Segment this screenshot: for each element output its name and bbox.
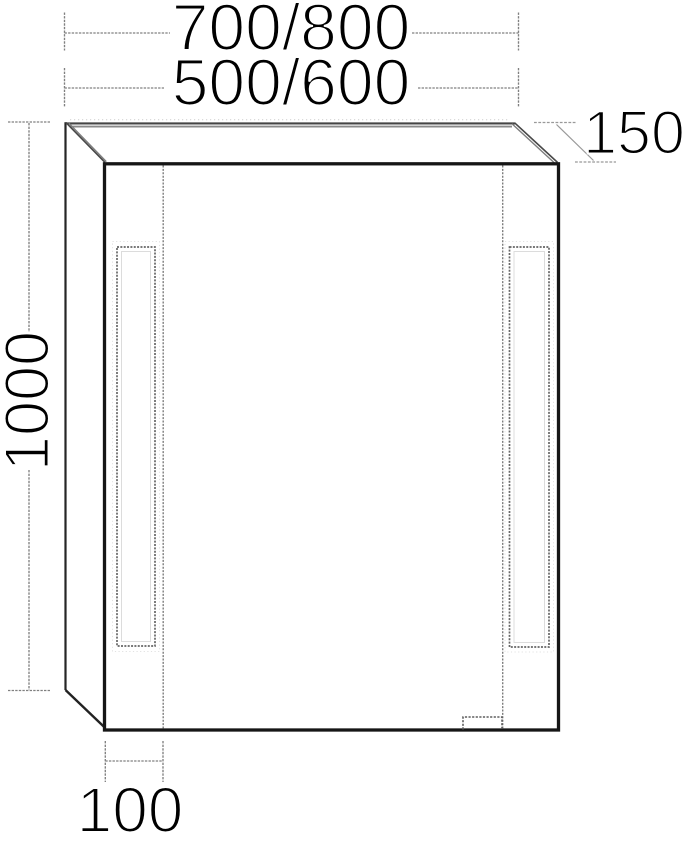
svg-text:100: 100 (77, 774, 184, 846)
svg-text:1000: 1000 (0, 331, 63, 471)
svg-text:150: 150 (583, 99, 685, 167)
svg-text:500/600: 500/600 (172, 45, 411, 119)
